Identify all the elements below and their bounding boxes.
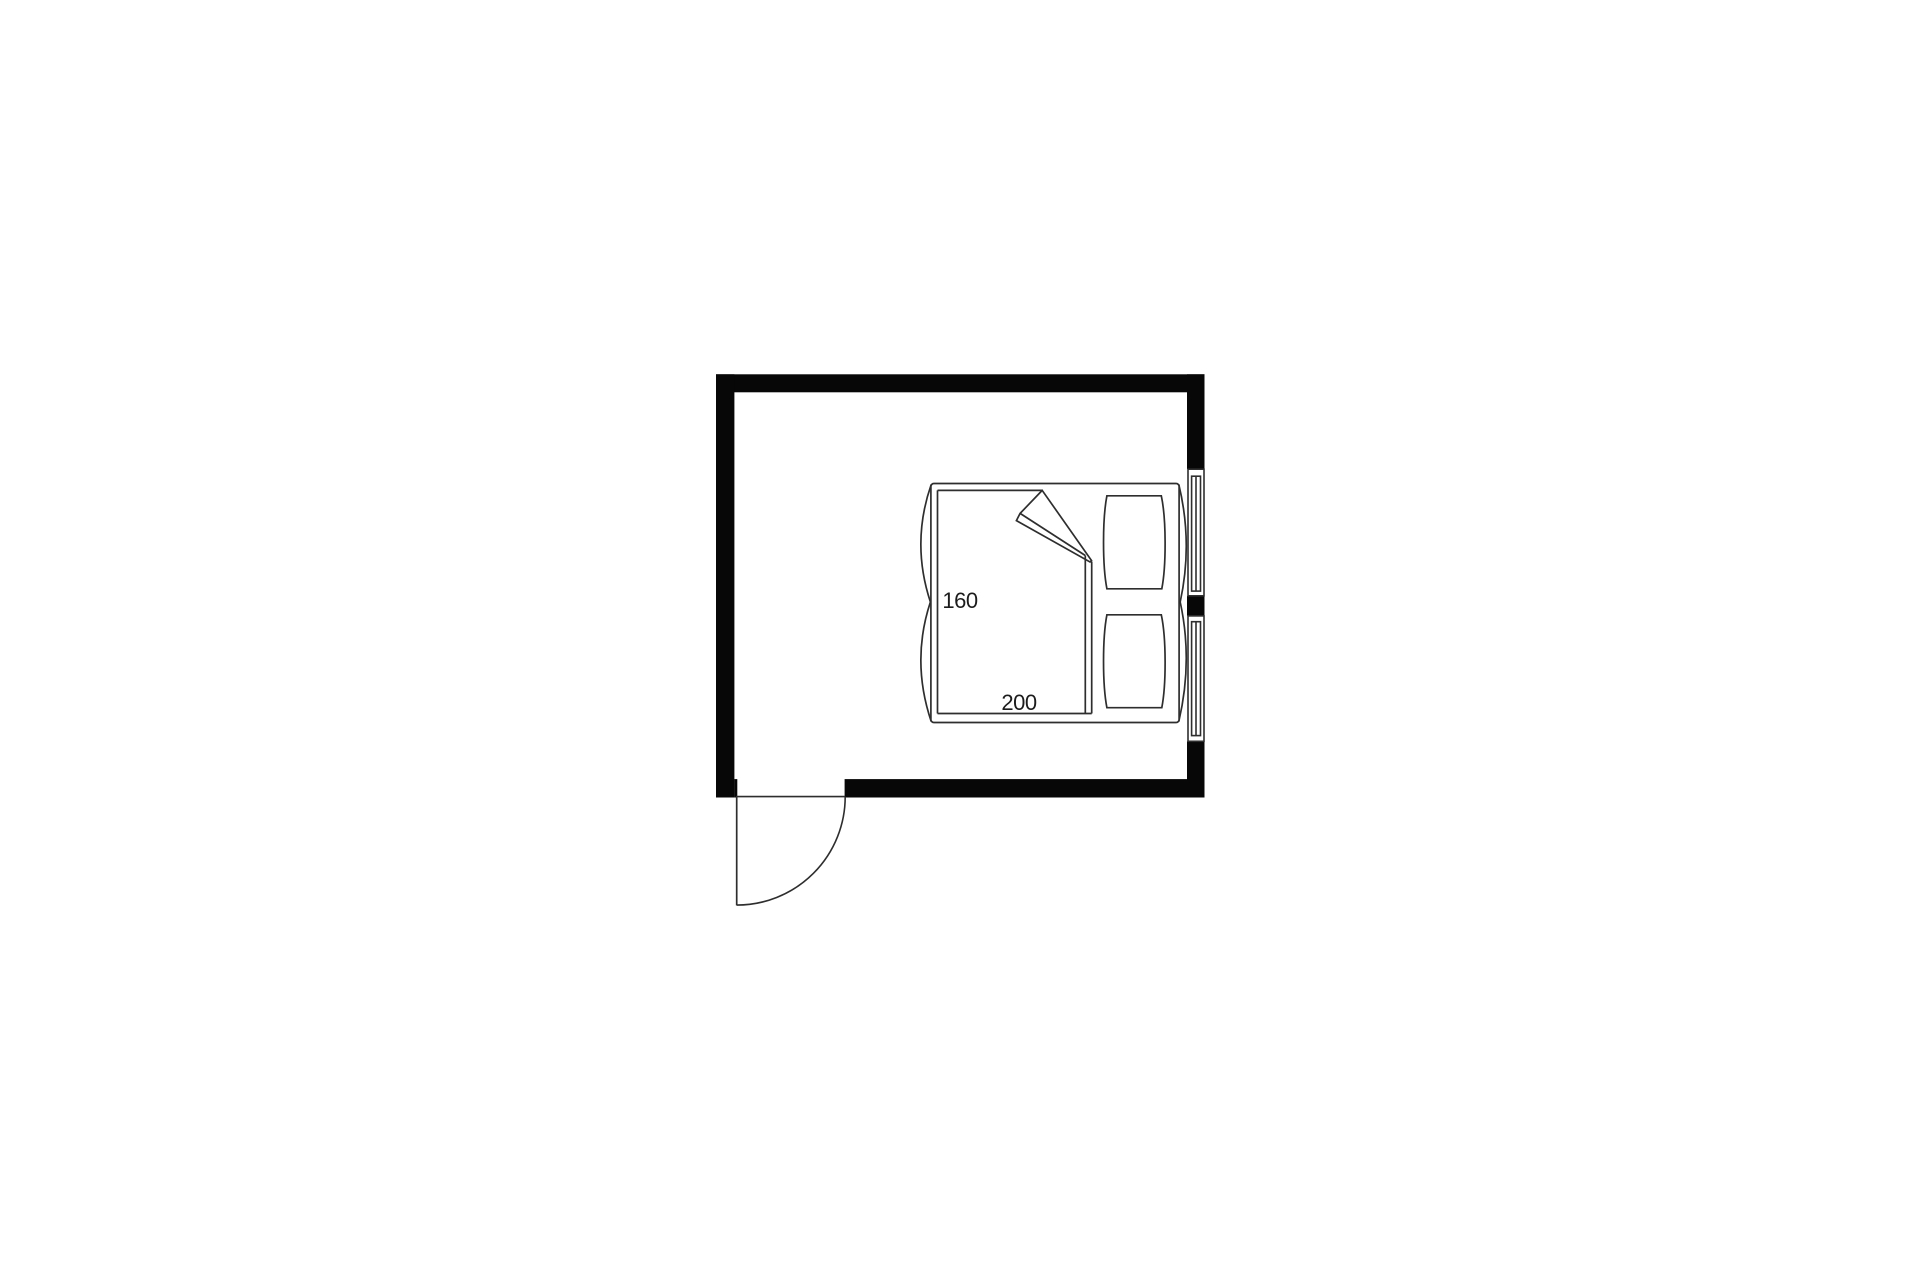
svg-text:200: 200: [1001, 690, 1036, 715]
svg-text:160: 160: [942, 588, 977, 613]
